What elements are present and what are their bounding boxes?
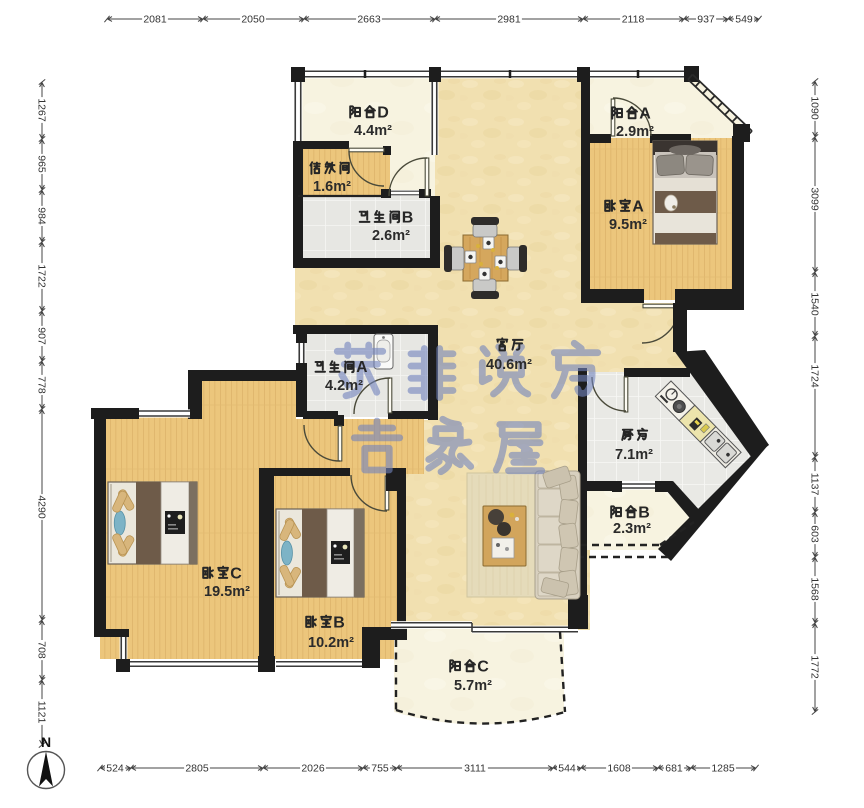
svg-text:B: B (333, 614, 345, 631)
svg-text:1.6m²: 1.6m² (313, 179, 351, 195)
svg-text:1608: 1608 (607, 763, 631, 775)
svg-text:2981: 2981 (497, 14, 521, 26)
svg-text:1568: 1568 (808, 577, 820, 601)
svg-text:1137: 1137 (808, 473, 820, 496)
svg-text:A: A (632, 198, 644, 215)
svg-text:C: C (477, 658, 489, 675)
svg-text:4.2m²: 4.2m² (325, 378, 363, 394)
svg-text:603: 603 (808, 525, 820, 543)
svg-text:544: 544 (558, 763, 576, 775)
svg-text:755: 755 (371, 763, 389, 775)
svg-text:2.6m²: 2.6m² (372, 228, 410, 244)
svg-text:3099: 3099 (808, 187, 820, 211)
svg-text:2805: 2805 (185, 763, 209, 775)
svg-text:D: D (377, 104, 389, 121)
svg-text:4290: 4290 (35, 495, 47, 519)
svg-text:937: 937 (697, 14, 715, 26)
svg-text:2026: 2026 (301, 763, 325, 775)
svg-text:1540: 1540 (808, 292, 820, 316)
svg-text:5.7m²: 5.7m² (454, 678, 492, 694)
svg-text:2081: 2081 (143, 14, 167, 26)
svg-text:9.5m²: 9.5m² (609, 217, 647, 233)
svg-text:549: 549 (735, 14, 753, 26)
svg-text:2663: 2663 (357, 14, 381, 26)
svg-text:B: B (402, 209, 414, 226)
svg-text:778: 778 (35, 376, 47, 394)
svg-text:1121: 1121 (35, 701, 47, 724)
svg-text:681: 681 (665, 763, 683, 775)
svg-text:3111: 3111 (464, 763, 486, 775)
svg-text:A: A (639, 105, 651, 122)
svg-text:1267: 1267 (35, 98, 47, 122)
svg-text:10.2m²: 10.2m² (308, 635, 354, 651)
svg-text:B: B (638, 504, 650, 521)
svg-text:2050: 2050 (241, 14, 265, 26)
svg-text:1090: 1090 (808, 96, 820, 120)
svg-text:C: C (230, 565, 242, 582)
svg-text:984: 984 (35, 207, 47, 225)
svg-text:965: 965 (35, 155, 47, 173)
svg-text:2.9m²: 2.9m² (616, 124, 654, 140)
svg-text:524: 524 (106, 763, 124, 775)
svg-text:7.1m²: 7.1m² (615, 447, 653, 463)
svg-text:1724: 1724 (808, 364, 820, 388)
svg-text:19.5m²: 19.5m² (204, 584, 250, 600)
svg-text:40.6m²: 40.6m² (486, 357, 532, 373)
svg-text:A: A (356, 359, 367, 376)
svg-text:2118: 2118 (622, 14, 645, 26)
svg-text:708: 708 (35, 641, 47, 659)
svg-text:2.3m²: 2.3m² (613, 521, 651, 537)
svg-text:1722: 1722 (35, 264, 47, 288)
svg-text:N: N (41, 734, 51, 750)
svg-text:1285: 1285 (711, 763, 735, 775)
svg-text:4.4m²: 4.4m² (354, 123, 392, 139)
svg-text:1772: 1772 (808, 655, 820, 679)
svg-text:907: 907 (35, 327, 47, 345)
